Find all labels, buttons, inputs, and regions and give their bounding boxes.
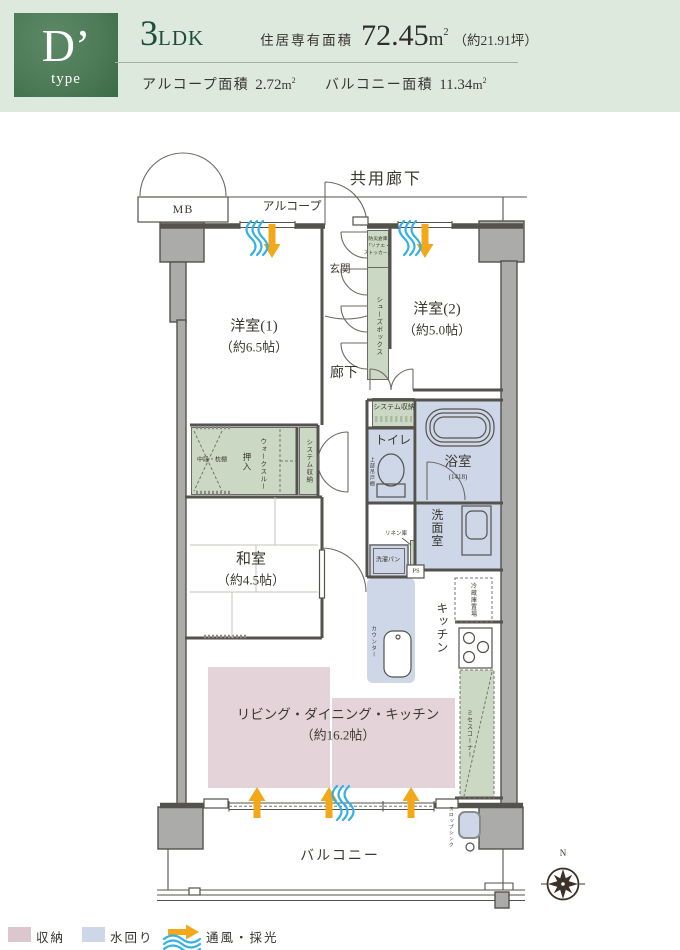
mb-door-arcs (140, 153, 226, 196)
bath-label: 浴室 (445, 454, 472, 470)
bath-size-label: (1418) (449, 473, 468, 481)
common-corridor-lines (138, 153, 527, 222)
compass-icon (541, 866, 585, 903)
floorplan-page: D’ type 3 LDK 住居専有面積 72.45 m 2 （約21.91坪）… (0, 0, 680, 950)
disaster-box-line1: 防災倉庫 (368, 237, 387, 243)
toilet-label: トイレ (375, 434, 411, 448)
western1-name-label: 洋室(1) (230, 318, 278, 335)
entrance-step (325, 316, 367, 319)
exclusive-area-value: 72.45 (361, 19, 429, 53)
ldk-size-label: （約16.2帖） (301, 729, 376, 744)
system-storage-a-label: システム収納 (373, 403, 415, 411)
ps-label: PS (412, 567, 419, 574)
header-divider (115, 62, 518, 63)
alcove-area-sup: 2 (292, 76, 298, 85)
up-arrow-ldk3 (403, 787, 420, 818)
japanese-room-size-label: （約4.5帖） (217, 574, 285, 589)
laundry-pan-label: 洗濯パン (376, 558, 400, 565)
up-arrow-ldk2 (321, 787, 338, 818)
corridor-label: 廊下 (330, 366, 358, 382)
exclusive-area-tsubo: （約21.91坪） (453, 29, 537, 49)
balcony-area-sup: 2 (483, 76, 489, 85)
legend-water-swatch (82, 927, 105, 942)
western2-name-label: 洋室(2) (413, 301, 461, 318)
legend-ventilation-label: 通風・採光 (206, 927, 279, 946)
wind-waves-top1 (247, 221, 268, 255)
slop-sink-label: スロップシンク (447, 806, 453, 848)
oshiire-label: 押入 (241, 453, 251, 472)
down-arrow-west2 (417, 224, 434, 258)
japanese-room-name-label: 和室 (236, 551, 266, 568)
linen-label: リネン庫 (385, 531, 407, 537)
wind-waves-top2 (400, 221, 421, 255)
bathroom-area (417, 401, 503, 502)
alcove-area-unit: m (282, 77, 292, 93)
wind-waves-bottom (333, 786, 354, 820)
mb-label: MB (173, 203, 194, 217)
walkthrough-label: ウォークスルー (258, 438, 265, 491)
floorplan-drawing (0, 0, 680, 950)
mrs-corner-label: ミセスコーナー (465, 710, 472, 759)
alcove-area-row: アルコープ面積 2.72 m 2 (142, 74, 297, 94)
shelf-label: 中段・枕棚 (197, 458, 227, 465)
fridge-space-label: 冷蔵庫置場 (469, 583, 476, 618)
balcony-area-value: 11.34 (439, 77, 472, 94)
layout-unit: LDK (158, 26, 204, 51)
legend-water-label: 水回り (110, 927, 154, 946)
north-label: N (560, 848, 567, 858)
shoes-box-label: シューズボックス (374, 296, 381, 356)
door-closer (353, 217, 368, 225)
ventilation-legend-icon (164, 925, 200, 950)
balcony-area-label: バルコニー面積 (325, 74, 433, 94)
unit-type-letter: D’ (42, 23, 91, 69)
entrance-label: 玄関 (330, 264, 351, 276)
unit-type-word: type (51, 71, 81, 88)
walkthrough-doors (318, 432, 348, 492)
ldk-door (322, 548, 366, 592)
alcove-area-label: アルコープ面積 (142, 74, 249, 94)
western1-size-label: （約6.5帖） (220, 341, 288, 356)
disaster-box-line2: 「ソナエ・ (366, 244, 390, 250)
alcove-label: アルコープ (263, 200, 322, 214)
kitchen-label: キッチン (434, 602, 448, 654)
washroom-label: 洗面室 (429, 509, 443, 548)
disaster-box-line3: ストッカー」 (364, 251, 393, 257)
up-arrow-ldk1 (249, 787, 266, 818)
washitsu-sliding-door (320, 550, 325, 598)
exclusive-area-unit: m (429, 29, 444, 51)
drain-circle (466, 843, 474, 851)
ldk-name-label: リビング・ダイニング・キッチン (237, 707, 440, 723)
alcove-area-value: 2.72 (255, 77, 281, 94)
balcony-area-row: バルコニー面積 11.34 m 2 (325, 74, 488, 94)
stove (459, 628, 492, 668)
balcony-area-unit: m (472, 77, 482, 93)
legend-storage-swatch (8, 927, 31, 942)
counter-label: カウンター (370, 626, 376, 659)
upper-cabinet-label: 上部吊戸棚 (368, 457, 374, 487)
balcony-label: バルコニー (300, 849, 380, 865)
western2-size-label: （約5.0帖） (403, 324, 471, 339)
header-main-row: 3 LDK 住居専有面積 72.45 m 2 （約21.91坪） (140, 12, 538, 54)
common-corridor-label: 共用廊下 (350, 171, 422, 189)
exclusive-area-label: 住居専有面積 (260, 29, 353, 49)
layout-number: 3 (140, 12, 158, 54)
legend-storage-label: 収納 (36, 927, 65, 946)
down-arrow-west1 (264, 224, 281, 258)
exclusive-area-sup: 2 (443, 27, 448, 38)
unit-type-badge: D’ type (14, 13, 118, 97)
system-storage-b-label: システム収納 (304, 439, 311, 484)
slop-sink (459, 812, 480, 838)
